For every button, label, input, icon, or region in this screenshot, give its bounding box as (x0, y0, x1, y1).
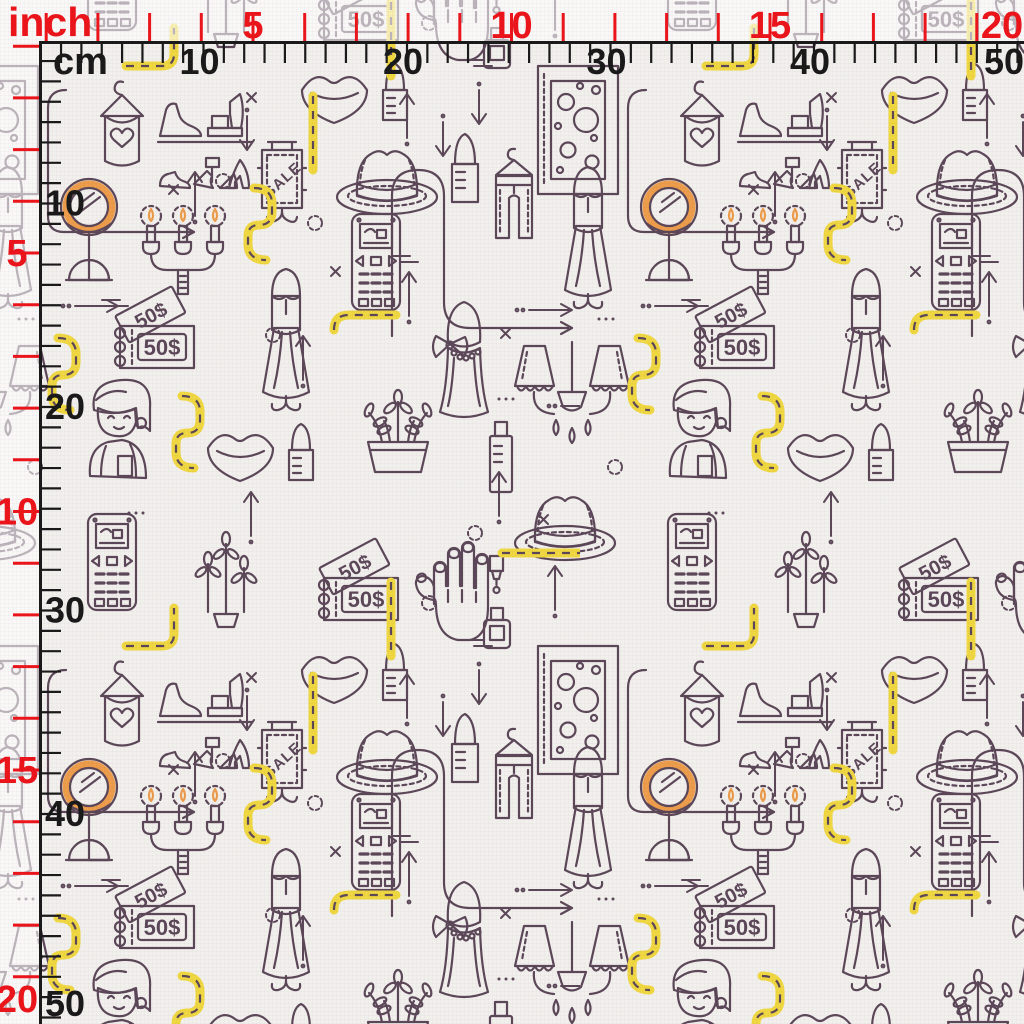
cm-label-top: 20 (383, 41, 423, 82)
cm-label-left: 50 (45, 983, 85, 1024)
inch-label-left: 5 (6, 233, 27, 275)
cm-label-left: 10 (45, 183, 85, 224)
inch-label-top: 5 (242, 5, 263, 47)
inch-label-top: 20 (981, 5, 1023, 47)
cm-label-top: 10 (179, 41, 219, 82)
inch-label-top: 10 (490, 5, 532, 47)
cm-label-top: 40 (790, 41, 830, 82)
fabric-preview-scene: SALE (0, 0, 1024, 1024)
fabric-pattern-preview: SALE (0, 0, 1024, 1024)
inch-unit-label: inch (8, 0, 92, 45)
fabric-pattern (0, 0, 1024, 1024)
cm-unit-label: cm (53, 41, 108, 83)
inch-label-left: 15 (0, 750, 38, 792)
inch-label-left: 20 (0, 979, 38, 1021)
inch-label-top: 15 (749, 5, 791, 47)
cm-label-top: 50 (984, 41, 1024, 82)
inch-label-left: 10 (0, 492, 38, 534)
cm-label-left: 20 (45, 386, 85, 427)
cm-label-left: 40 (45, 793, 85, 834)
cm-label-top: 30 (586, 41, 626, 82)
cm-label-left: 30 (45, 590, 85, 631)
